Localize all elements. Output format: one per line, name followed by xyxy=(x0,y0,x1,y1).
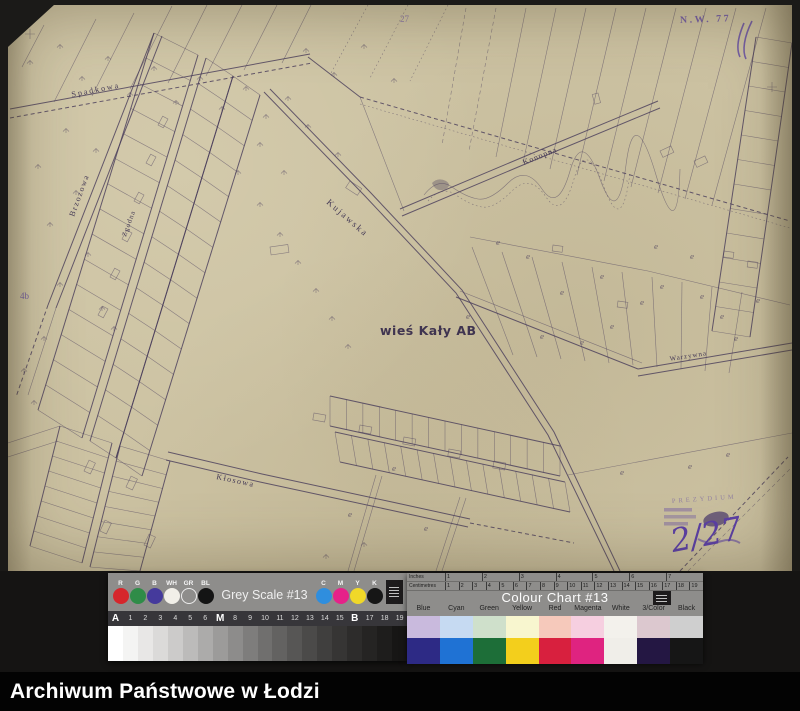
greyscale-tick-label: 4 xyxy=(168,615,183,622)
svg-text:e: e xyxy=(610,323,614,331)
colour-column-label: Black xyxy=(670,605,703,616)
color-dot: R xyxy=(112,580,129,604)
light-patch xyxy=(407,616,440,638)
greyscale-tick-label: 17 xyxy=(362,615,377,622)
edge-number-note: 4b xyxy=(20,291,30,301)
color-dot-label: BL xyxy=(201,580,210,588)
colour-column-label: Magenta xyxy=(571,605,604,616)
greyscale-tick-row: A123456M89101112131415B171819 xyxy=(108,611,407,626)
colour-patch-grid xyxy=(407,616,703,664)
svg-text:e: e xyxy=(726,451,730,459)
inch-number: 2 xyxy=(482,573,519,581)
svg-text:e: e xyxy=(496,239,500,247)
greyscale-step xyxy=(228,626,243,661)
greyscale-tick-label: 12 xyxy=(287,615,302,622)
greyscale-step xyxy=(138,626,153,661)
cm-number: 2 xyxy=(459,582,473,590)
greyscale-step xyxy=(183,626,198,661)
cm-number: 17 xyxy=(662,582,676,590)
light-patch xyxy=(604,616,637,638)
svg-text:e: e xyxy=(424,525,428,533)
street-label-kujawska: Kujawska xyxy=(325,197,371,239)
color-dot-icon xyxy=(198,588,214,604)
svg-text:e: e xyxy=(466,313,470,321)
svg-text:e: e xyxy=(580,339,584,347)
street-label-spadkowa: Spadkowa xyxy=(71,81,121,99)
sheet-code-stamp: N.W. 77 xyxy=(680,13,732,26)
cm-ruler: Centimetres 1234567891011121314151617181… xyxy=(407,582,703,591)
greyscale-dots-right: C M Y K xyxy=(315,580,383,604)
svg-text:e: e xyxy=(720,313,724,321)
greyscale-step xyxy=(243,626,258,661)
colour-column xyxy=(407,616,440,664)
greyscale-step xyxy=(287,626,302,661)
svg-text:e: e xyxy=(600,273,604,281)
archive-footer-bar: Archiwum Państwowe w Łodzi xyxy=(0,672,800,711)
inch-ruler-label: Inches xyxy=(409,574,424,580)
light-patch xyxy=(440,616,473,638)
pond xyxy=(432,179,449,190)
cm-number: 12 xyxy=(594,582,608,590)
colour-column xyxy=(440,616,473,664)
color-dot-icon xyxy=(147,588,163,604)
inch-ruler: Inches 1234567 xyxy=(407,573,703,582)
color-dot: GR xyxy=(180,580,197,604)
color-dot: K xyxy=(366,580,383,604)
greyscale-chart: R G B WH GR BL Grey Scal xyxy=(108,573,407,661)
greyscale-step xyxy=(272,626,287,661)
svg-text:e: e xyxy=(620,469,624,477)
street-label-brzozowa: Brzozowa xyxy=(67,173,91,218)
greyscale-tick-label: 18 xyxy=(377,615,392,622)
dark-patch xyxy=(473,638,506,664)
parcel-grids: eeeeeeeeeeeeeeeeeeeeee xyxy=(21,5,792,571)
color-dot-icon xyxy=(350,588,366,604)
greyscale-title: Grey Scale #13 xyxy=(220,588,309,602)
greyscale-step xyxy=(362,626,377,661)
cm-number: 9 xyxy=(554,582,568,590)
color-dot-icon xyxy=(367,588,383,604)
greyscale-tick-label: 3 xyxy=(153,615,168,622)
greyscale-tick-label: 9 xyxy=(243,615,258,622)
greyscale-tick-label: 11 xyxy=(272,615,287,622)
map-sheet: eeeeeeeeeeeeeeeeeeeeee Spadkowa Brzozowa… xyxy=(8,5,792,571)
svg-text:e: e xyxy=(660,283,664,291)
top-number-stamp: 27 xyxy=(400,14,410,24)
greyscale-step xyxy=(377,626,392,661)
cm-number: 10 xyxy=(567,582,581,590)
colour-column-label: White xyxy=(604,605,637,616)
cm-number: 1 xyxy=(445,582,459,590)
svg-text:e: e xyxy=(756,297,760,305)
dark-patch xyxy=(440,638,473,664)
office-stamp-fragment: PREZYDIUM xyxy=(672,493,737,505)
cm-number: 6 xyxy=(513,582,527,590)
greyscale-step xyxy=(392,626,407,661)
handwritten-mark xyxy=(738,21,752,59)
cm-number: 19 xyxy=(689,582,703,590)
greyscale-tick-label: 6 xyxy=(198,615,213,622)
svg-text:e: e xyxy=(348,511,352,519)
greyscale-step xyxy=(123,626,138,661)
inch-number: 6 xyxy=(629,573,666,581)
inch-numbers: 1234567 xyxy=(407,573,703,581)
colour-column-label: Cyan xyxy=(440,605,473,616)
light-patch xyxy=(473,616,506,638)
inch-number: 4 xyxy=(556,573,593,581)
color-dot-icon xyxy=(164,588,180,604)
color-dot-icon xyxy=(316,588,332,604)
manufacturer-logo-patch xyxy=(386,580,403,604)
cm-number: 16 xyxy=(649,582,663,590)
dark-patch xyxy=(506,638,539,664)
svg-text:e: e xyxy=(392,465,396,473)
greyscale-dots-left: R G B WH GR BL xyxy=(112,580,214,604)
inch-number: 5 xyxy=(592,573,629,581)
colour-column xyxy=(506,616,539,664)
greyscale-tick-label: 14 xyxy=(317,615,332,622)
greyscale-tick-label: 8 xyxy=(228,615,243,622)
svg-text:e: e xyxy=(560,289,564,297)
greyscale-step xyxy=(168,626,183,661)
color-dot-label: C xyxy=(321,580,326,588)
greyscale-tick-label: 15 xyxy=(332,615,347,622)
colour-column-label: Green xyxy=(473,605,506,616)
greyscale-tick-label: 1 xyxy=(123,615,138,622)
greyscale-tick-label: 2 xyxy=(138,615,153,622)
color-dot-icon xyxy=(333,588,349,604)
svg-text:e: e xyxy=(734,335,738,343)
cm-number: 3 xyxy=(472,582,486,590)
color-dot-label: R xyxy=(118,580,123,588)
color-dot: Y xyxy=(349,580,366,604)
colour-column-label: Yellow xyxy=(506,605,539,616)
light-patch xyxy=(506,616,539,638)
colour-column-label: Red xyxy=(539,605,572,616)
color-dot-label: WH xyxy=(166,580,177,588)
colour-column xyxy=(670,616,703,664)
light-patch xyxy=(670,616,703,638)
svg-text:e: e xyxy=(700,293,704,301)
light-patch xyxy=(637,616,670,638)
greyscale-step xyxy=(108,626,123,661)
greyscale-step xyxy=(198,626,213,661)
colour-column xyxy=(473,616,506,664)
greyscale-step xyxy=(302,626,317,661)
cm-number: 18 xyxy=(676,582,690,590)
color-dot: WH xyxy=(163,580,180,604)
colour-column xyxy=(571,616,604,664)
dark-patch xyxy=(670,638,703,664)
dark-patch xyxy=(571,638,604,664)
greyscale-tick-label: B xyxy=(347,613,362,624)
registration-cross-icon xyxy=(25,29,777,92)
cm-number: 5 xyxy=(499,582,513,590)
color-dot: M xyxy=(332,580,349,604)
colour-labels-row: BlueCyanGreenYellowRedMagentaWhite3/Colo… xyxy=(407,605,703,616)
inch-number: 3 xyxy=(519,573,556,581)
cm-numbers: 12345678910111213141516171819 xyxy=(407,582,703,590)
inch-number: 1 xyxy=(445,573,482,581)
color-dot: BL xyxy=(197,580,214,604)
archive-scan-page: eeeeeeeeeeeeeeeeeeeeee Spadkowa Brzozowa… xyxy=(0,0,800,711)
greyscale-tick-label: 5 xyxy=(183,615,198,622)
dark-patch xyxy=(407,638,440,664)
greyscale-step xyxy=(258,626,273,661)
cm-number: 14 xyxy=(622,582,636,590)
svg-text:e: e xyxy=(688,463,692,471)
greyscale-step xyxy=(153,626,168,661)
roads xyxy=(8,33,792,571)
manufacturer-logo-patch xyxy=(653,591,671,605)
colour-column xyxy=(604,616,637,664)
map-canvas: eeeeeeeeeeeeeeeeeeeeee Spadkowa Brzozowa… xyxy=(8,5,792,571)
color-dot-icon xyxy=(130,588,146,604)
greyscale-tick-label: A xyxy=(108,613,123,624)
colour-column xyxy=(637,616,670,664)
svg-text:e: e xyxy=(640,299,644,307)
colour-column xyxy=(539,616,572,664)
greyscale-step xyxy=(317,626,332,661)
color-dot-label: B xyxy=(152,580,157,588)
cm-number: 7 xyxy=(526,582,540,590)
greyscale-step xyxy=(332,626,347,661)
greyscale-step xyxy=(213,626,228,661)
cm-number: 8 xyxy=(540,582,554,590)
light-patch xyxy=(571,616,604,638)
greyscale-step xyxy=(347,626,362,661)
color-dot-icon xyxy=(181,588,197,604)
archive-name: Archiwum Państwowe w Łodzi xyxy=(0,672,800,711)
greyscale-tick-label: 10 xyxy=(258,615,273,622)
greyscale-header: R G B WH GR BL Grey Scal xyxy=(108,573,407,611)
colour-column-label: Blue xyxy=(407,605,440,616)
color-dot-label: M xyxy=(338,580,343,588)
svg-text:e: e xyxy=(540,333,544,341)
dark-patch xyxy=(604,638,637,664)
svg-text:e: e xyxy=(526,253,530,261)
dark-patch xyxy=(539,638,572,664)
svg-text:e: e xyxy=(654,243,658,251)
street-label-klosowa: Kłosowa xyxy=(216,472,256,489)
color-dot-label: K xyxy=(372,580,377,588)
color-dot: B xyxy=(146,580,163,604)
cm-number: 15 xyxy=(635,582,649,590)
greyscale-step-strip xyxy=(108,626,407,661)
greyscale-tick-label: M xyxy=(213,613,228,624)
greyscale-tick-label: 13 xyxy=(302,615,317,622)
color-dot: C xyxy=(315,580,332,604)
cm-number: 11 xyxy=(581,582,595,590)
cm-number: 13 xyxy=(608,582,622,590)
cm-ruler-label: Centimetres xyxy=(409,583,436,589)
greyscale-tick-label: 19 xyxy=(392,615,407,622)
colour-chart: Inches 1234567 Centimetres 1234567891011… xyxy=(407,573,703,662)
cm-number: 4 xyxy=(486,582,500,590)
svg-text:e: e xyxy=(690,253,694,261)
street-label-zgodna: Zgodna xyxy=(120,209,137,237)
color-dot-label: Y xyxy=(355,580,359,588)
color-dot-icon xyxy=(113,588,129,604)
light-patch xyxy=(539,616,572,638)
village-label: wieś Kały AB xyxy=(380,323,477,338)
colour-column-label: 3/Color xyxy=(637,605,670,616)
color-dot: G xyxy=(129,580,146,604)
dark-patch xyxy=(637,638,670,664)
color-dot-label: G xyxy=(135,580,140,588)
color-dot-label: GR xyxy=(184,580,194,588)
inch-number: 7 xyxy=(666,573,703,581)
